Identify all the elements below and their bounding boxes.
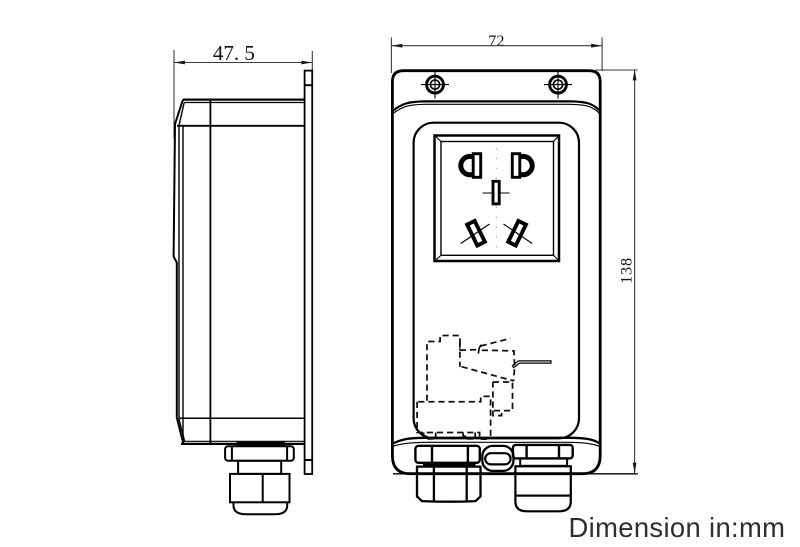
svg-text:47. 5: 47. 5 — [213, 41, 255, 65]
svg-text:72: 72 — [488, 32, 504, 50]
svg-text:138: 138 — [618, 257, 636, 284]
svg-text:Dimension in:mm: Dimension in:mm — [569, 512, 786, 543]
